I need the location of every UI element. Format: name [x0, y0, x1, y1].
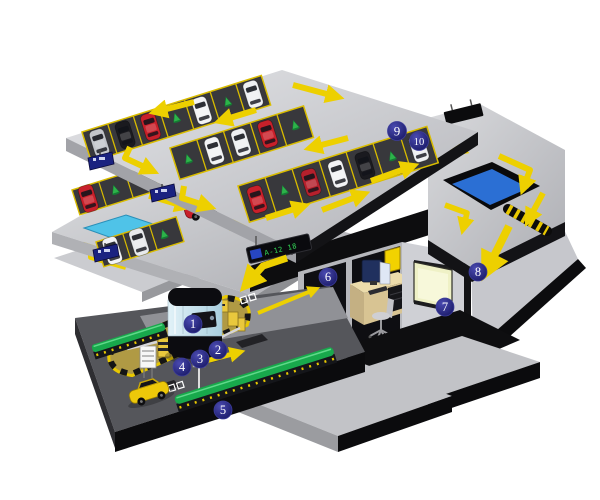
marker-7: 7	[436, 298, 454, 316]
marker-1: 1	[184, 315, 202, 333]
marker-9-label: 9	[394, 123, 401, 138]
marker-2-label: 2	[215, 343, 221, 357]
marker-5: 5	[214, 401, 232, 419]
marker-4: 4	[173, 358, 191, 376]
marker-2: 2	[209, 341, 227, 359]
marker-4-label: 4	[179, 360, 186, 374]
marker-10-label: 10	[414, 137, 425, 148]
marker-6: 6	[319, 268, 337, 286]
marker-7-label: 7	[442, 300, 448, 314]
marker-10: 10	[410, 132, 429, 151]
parking-system-illustration: A-12 18	[0, 0, 600, 500]
illustration-canvas: A-12 18	[0, 0, 600, 500]
marker-5-label: 5	[220, 403, 226, 417]
marker-9: 9	[388, 122, 407, 141]
marker-1-label: 1	[190, 317, 196, 331]
marker-6-label: 6	[325, 270, 331, 284]
marker-8-label: 8	[475, 265, 481, 279]
marker-3-label: 3	[197, 352, 203, 366]
marker-3: 3	[191, 350, 209, 368]
office-computer	[362, 260, 390, 285]
marker-8: 8	[469, 263, 487, 281]
